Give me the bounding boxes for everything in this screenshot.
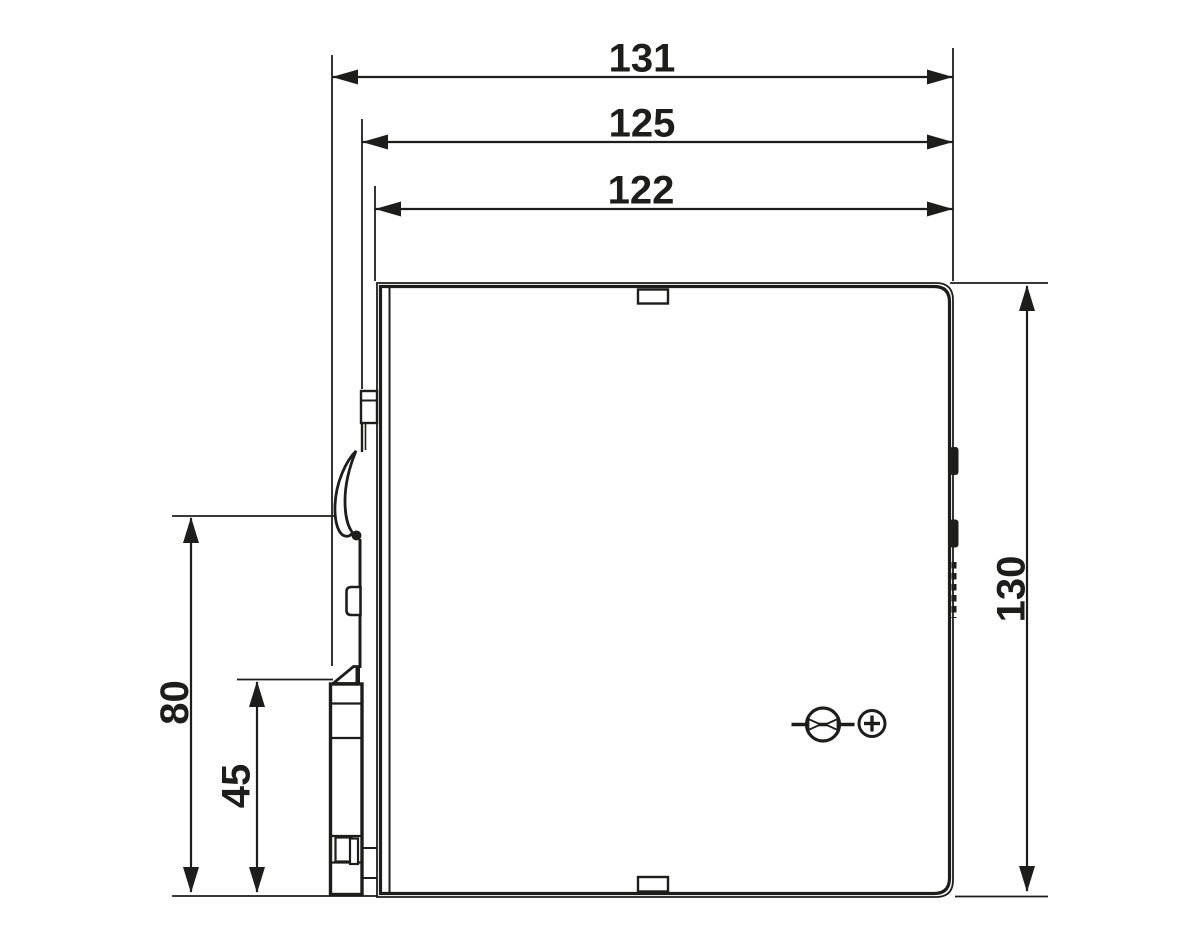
arrowhead-right-icon <box>927 202 953 217</box>
latch-wedge <box>333 667 359 684</box>
device-outline-inner <box>381 287 950 894</box>
right-edge-bump <box>950 447 959 475</box>
arrowhead-up-icon <box>1019 285 1035 311</box>
dimension-height-overall: 130 <box>950 283 1048 897</box>
plus-polarity-icon <box>859 711 885 737</box>
potentiometer-adjust-icon <box>792 708 855 741</box>
bottom-notch <box>638 877 668 892</box>
arrowhead-left-icon <box>332 70 358 85</box>
arrowhead-up-icon <box>249 681 265 707</box>
rail-guide-block <box>361 391 377 423</box>
dimension-width-housing: 125 <box>362 102 953 390</box>
dimension-width-front-face: 122 <box>375 169 953 282</box>
latch-tab-inner <box>350 839 358 865</box>
arrowhead-down-icon <box>249 867 265 893</box>
dimension-drawing: 131 125 122 130 80 45 <box>0 0 1200 938</box>
arrowhead-up-icon <box>183 517 199 543</box>
device-body <box>377 283 959 897</box>
dimension-value: 45 <box>215 764 259 809</box>
dimension-value: 130 <box>990 556 1034 623</box>
device-outline-outer <box>377 283 953 897</box>
latch-wedge-bar <box>356 666 361 684</box>
arrowhead-left-icon <box>375 202 401 217</box>
top-notch <box>638 290 668 304</box>
right-edge-bump <box>950 520 959 548</box>
arrowhead-down-icon <box>183 867 199 893</box>
dimension-value: 131 <box>609 37 676 81</box>
front-face-symbols <box>792 708 886 741</box>
din-rail-mounting <box>331 391 378 895</box>
dimension-drawing-canvas: 131 125 122 130 80 45 <box>0 0 1200 938</box>
rail-spring-hook <box>335 451 356 536</box>
adjust-arrow-right-icon <box>809 719 821 730</box>
dimension-value: 125 <box>609 102 676 146</box>
dimension-height-upper-left: 80 <box>153 516 337 893</box>
adjust-arrow-left-icon <box>826 719 838 730</box>
dimension-value: 80 <box>153 680 197 725</box>
arrowhead-down-icon <box>1019 866 1035 892</box>
arrowhead-right-icon <box>927 135 953 150</box>
arrowhead-left-icon <box>362 135 388 150</box>
rail-stop-bump <box>347 587 361 615</box>
dimension-height-lower-left: 45 <box>215 680 334 894</box>
arrowhead-right-icon <box>927 70 953 85</box>
dimension-value: 122 <box>608 169 675 213</box>
